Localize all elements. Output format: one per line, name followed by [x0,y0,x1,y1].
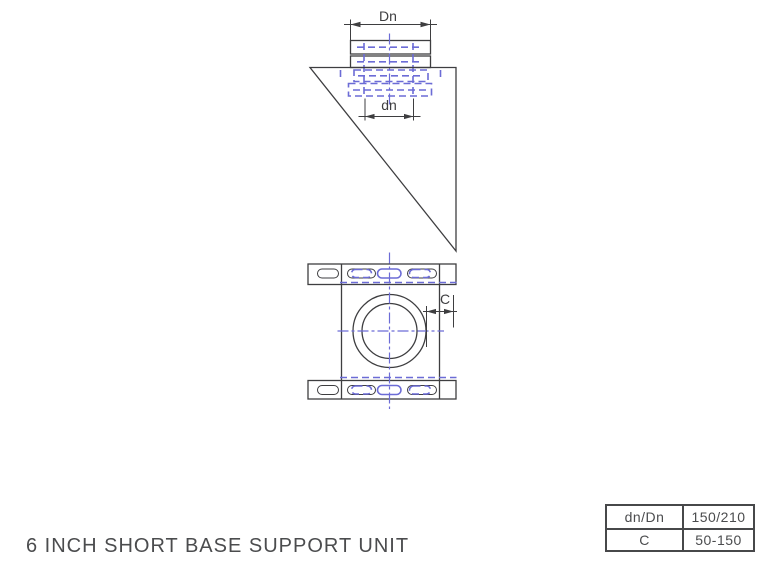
spec-param-dn-Dn: dn/Dn [607,506,682,528]
spec-param-C: C [607,528,682,550]
technical-drawing: Dn [0,0,780,580]
hidden-slot [352,270,372,278]
spec-table: dn/Dn 150/210 C 50-150 [605,504,755,552]
fixing-slots-bottom-row [318,386,437,395]
arrow-right-icon [444,309,454,314]
dimension-Dn: Dn [344,8,437,40]
side-view-gusset [310,68,456,252]
fixing-slots-top-row [318,269,437,278]
spec-value-dn-Dn: 150/210 [682,506,753,528]
spec-value-C: 50-150 [682,528,753,550]
slot [318,386,339,395]
hidden-pipe-lines [341,43,441,96]
arrow-left-icon [351,22,361,27]
hidden-slot [352,386,372,394]
inner-circle [362,304,417,359]
dimension-dn: dn [359,97,421,121]
hidden-slot [410,270,431,278]
bottom-flange-strip [308,381,456,400]
drawing-sheet: Dn [0,0,780,580]
dn-inner-dimension-label: dn [381,97,397,113]
slot [318,269,339,278]
arrow-left-icon [427,309,437,314]
c-dimension-label: C [440,291,450,307]
slot [348,386,376,395]
bottom-view-base-plate: C [308,253,457,410]
dn-outer-dimension-label: Dn [379,8,397,24]
top-flange-strip [308,264,456,285]
gusset-triangle [310,68,456,252]
arrow-left-icon [365,114,375,119]
hidden-slot [410,386,431,394]
drawing-title: 6 INCH SHORT BASE SUPPORT UNIT [26,535,409,558]
arrow-right-icon [421,22,431,27]
slot [348,269,376,278]
top-view-flue-section: Dn [341,8,441,121]
arrow-right-icon [404,114,414,119]
